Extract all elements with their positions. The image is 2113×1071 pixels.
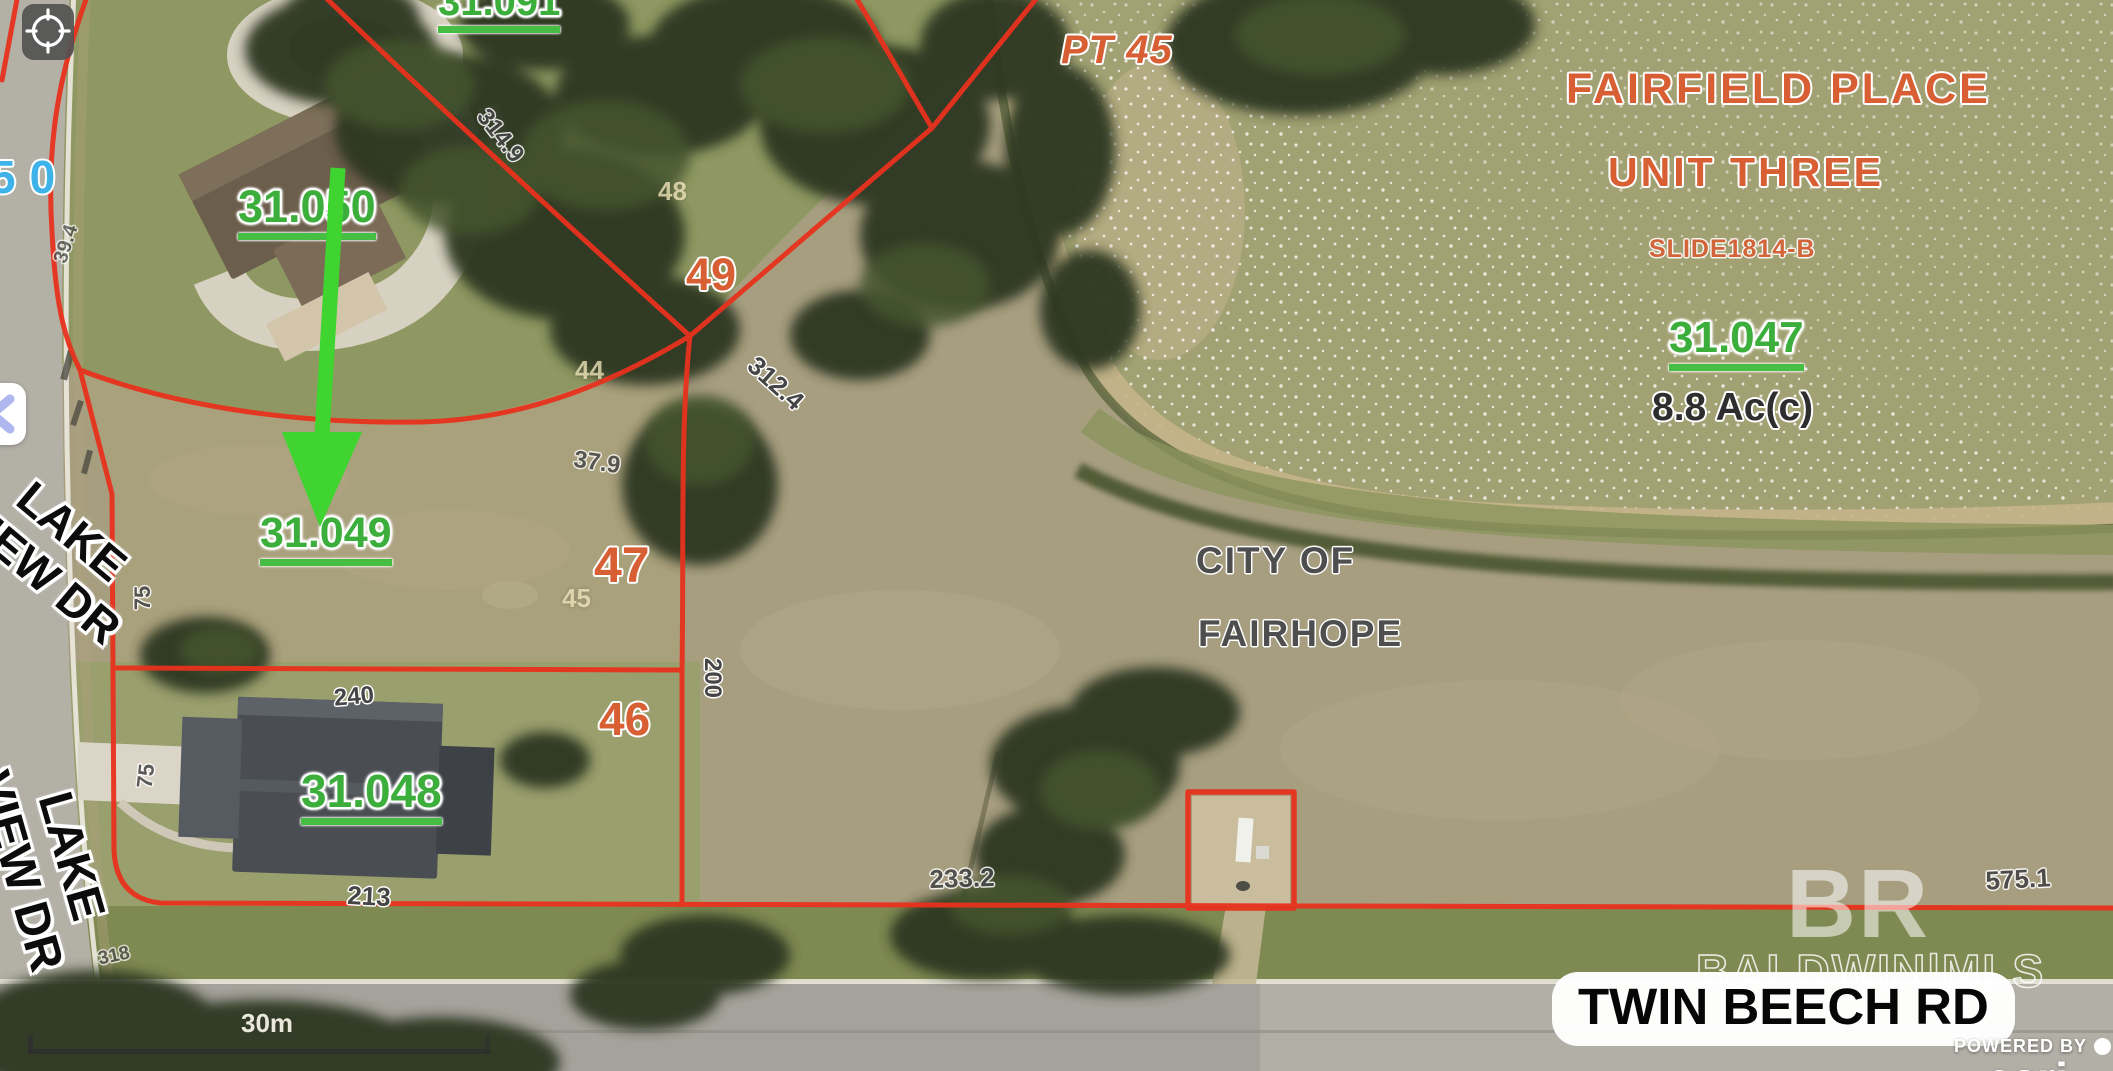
- lot-label-47: 47: [594, 540, 650, 590]
- parcel-label-31-047: 31.047: [1669, 316, 1804, 371]
- dimension-label: 233.2: [929, 864, 995, 892]
- subdivision-title-line1: FAIRFIELD PLACE: [1566, 68, 1991, 111]
- subdivision-slide-ref: SLIDE1814-B: [1649, 237, 1816, 262]
- collapse-panel-button[interactable]: [0, 383, 26, 445]
- dimension-label: 75: [134, 763, 158, 790]
- scale-label: 30m: [241, 1008, 293, 1039]
- dimension-label: 213: [347, 882, 392, 910]
- esri-globe-icon: [2094, 1038, 2111, 1055]
- highlight-arrow: [275, 160, 385, 535]
- city-label-line1: CITY OF: [1196, 542, 1355, 579]
- lot-label-49: 49: [686, 252, 736, 297]
- map-viewport[interactable]: 31.091 31.050 31.049 31.048 31.047 8.8 A…: [0, 0, 2113, 1071]
- scale-bar: 30m: [28, 1035, 490, 1059]
- plat-number-label: 48: [658, 178, 687, 204]
- dimension-label: 575.1: [1985, 864, 2051, 893]
- dimension-label: 240: [333, 683, 375, 710]
- esri-wordmark: esri: [1986, 1052, 2068, 1071]
- lot-label-pt45: PT 45: [1061, 30, 1173, 70]
- subdivision-title-line2: UNIT THREE: [1608, 152, 1884, 193]
- house-number-label: 50: [0, 154, 69, 200]
- plat-number-label: 45: [562, 585, 591, 611]
- plat-number-label: 44: [575, 357, 604, 383]
- parcel-label-31-091: 31.091: [438, 0, 560, 33]
- dimension-label: 200: [700, 658, 724, 698]
- lot-label-46: 46: [599, 696, 650, 742]
- parcel-label-31-048: 31.048: [301, 768, 442, 825]
- city-label-line2: FAIRHOPE: [1198, 615, 1403, 652]
- chevron-left-icon: [0, 383, 26, 445]
- compass-button[interactable]: [22, 4, 74, 60]
- parcel-acreage: 8.8 Ac(c): [1652, 388, 1813, 427]
- dimension-label: 37.9: [572, 448, 622, 478]
- compass-icon: [22, 4, 74, 60]
- street-label-twin-beech-rd: TWIN BEECH RD: [1552, 972, 2015, 1046]
